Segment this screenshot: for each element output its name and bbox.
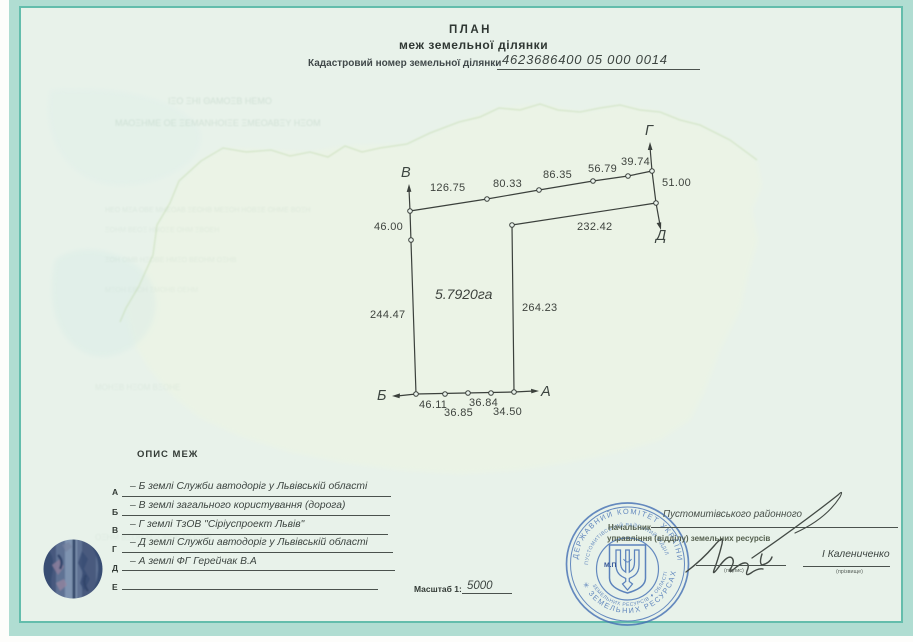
svg-text:М.П: М.П: [604, 562, 617, 569]
